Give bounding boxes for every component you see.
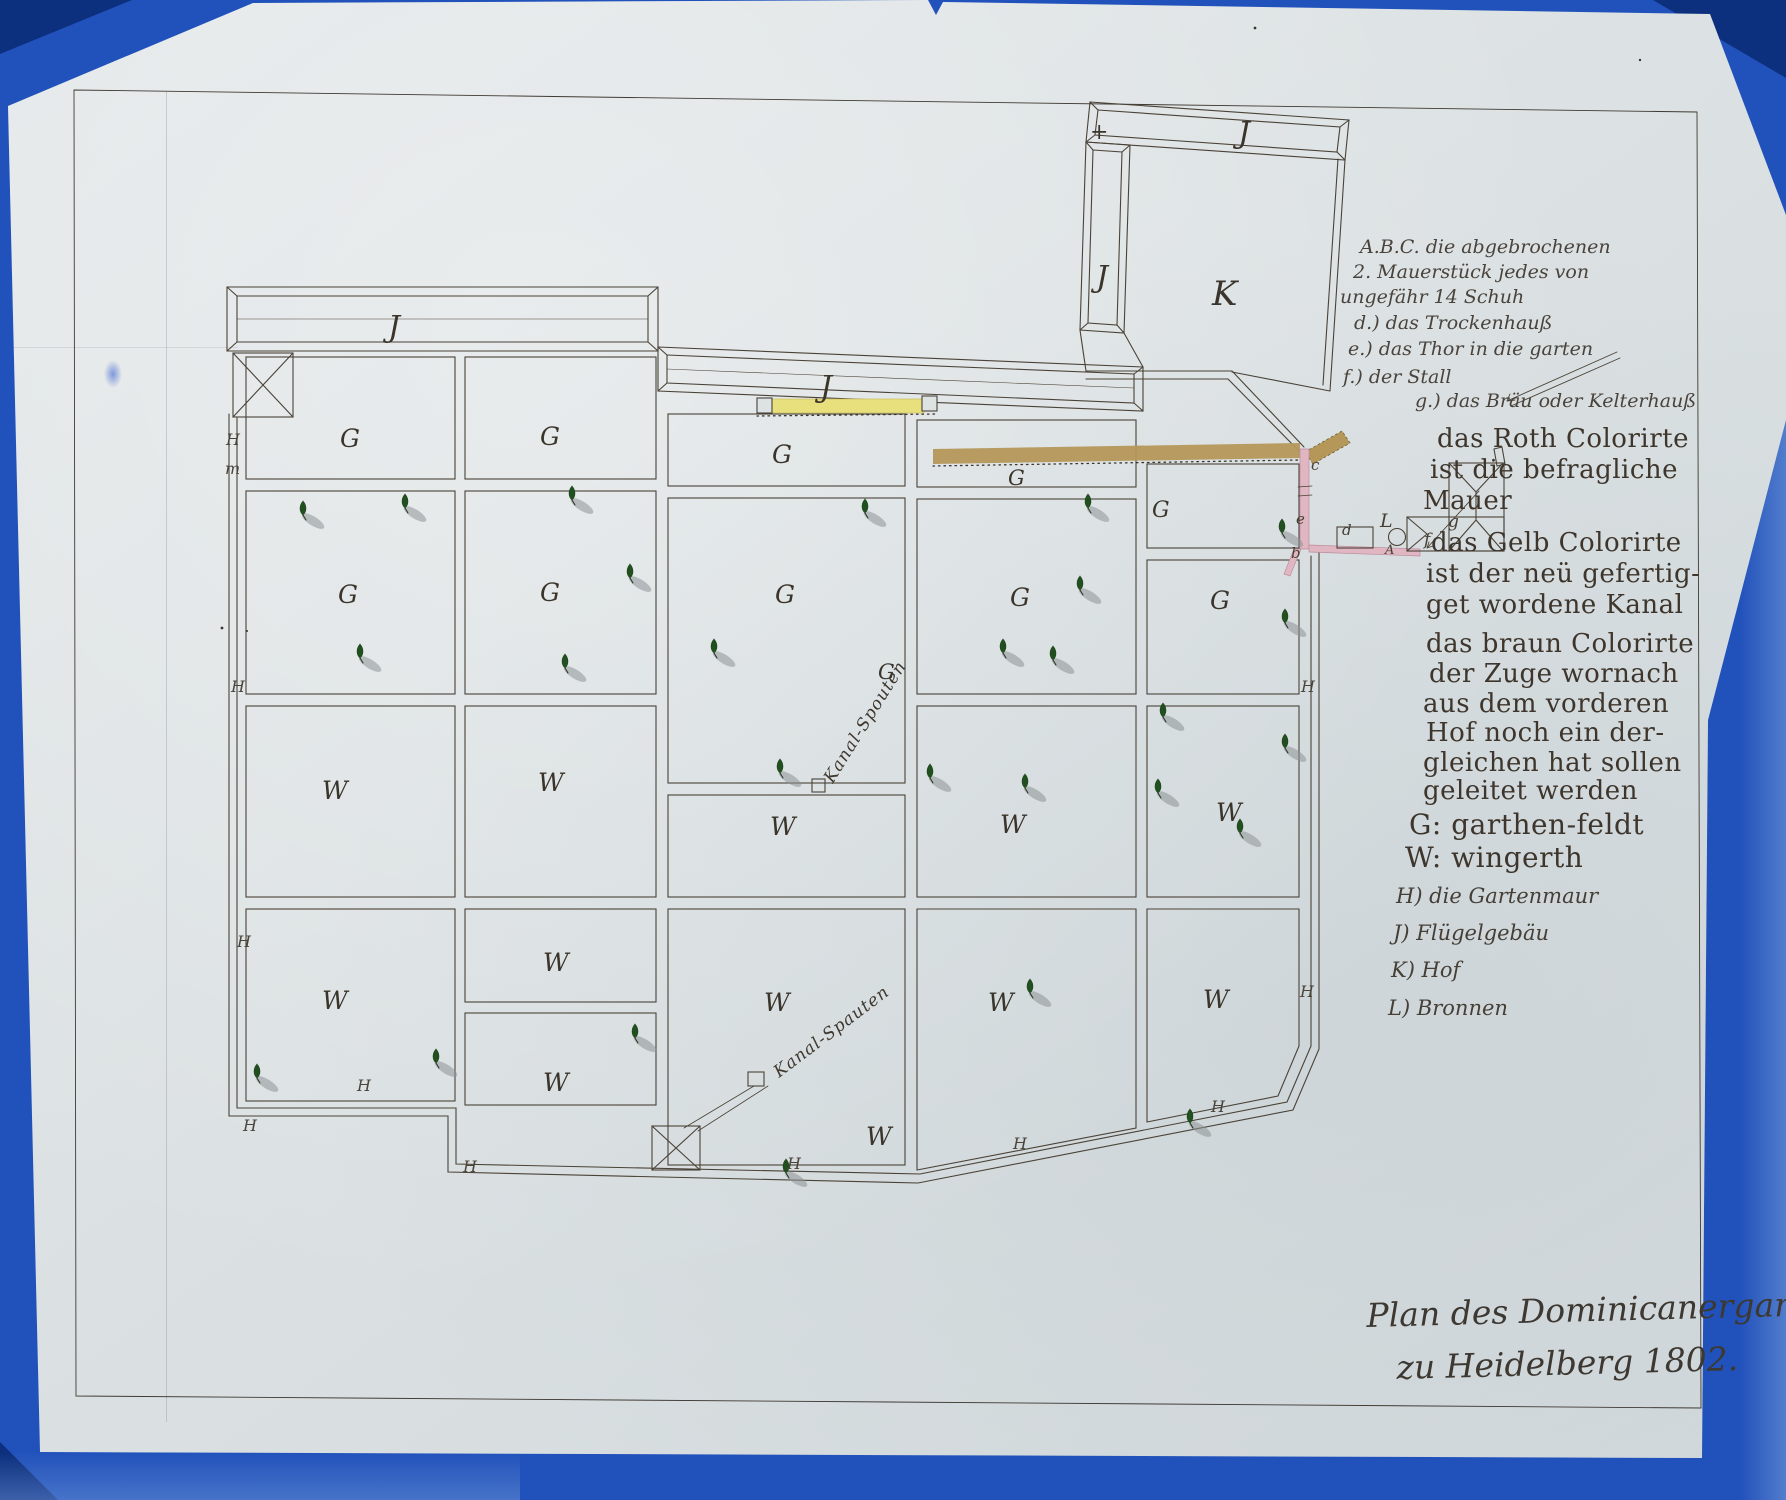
detail-label: d	[1342, 521, 1352, 539]
canal-label: Kanal-Spouten	[820, 658, 911, 787]
wall-label: H	[226, 430, 240, 449]
field-label: W	[543, 1068, 569, 1097]
detail-label: L	[1380, 510, 1393, 532]
detail-label: b	[1291, 544, 1301, 562]
field-label: G	[540, 578, 560, 607]
field-label: W	[1203, 985, 1229, 1014]
building-label: K	[1212, 274, 1237, 314]
wall-label: H	[357, 1076, 371, 1095]
field-label: W	[322, 986, 348, 1015]
field-label: G	[1010, 583, 1030, 612]
legend-note-line: 2. Mauerstück jedes von	[1353, 261, 1589, 283]
legend-note-line: f.) der Stall	[1343, 366, 1452, 388]
field-label: W	[538, 768, 564, 797]
field-label: G	[1008, 466, 1025, 490]
legend-text-line: ist der neü gefertig-	[1426, 559, 1700, 589]
field-label: G	[1210, 586, 1230, 615]
legend-text-line: geleitet werden	[1423, 776, 1638, 806]
building-label: +	[1090, 120, 1108, 145]
legend-key-line: K) Hof	[1391, 958, 1460, 982]
legend-note-line: ungefähr 14 Schuh	[1340, 286, 1524, 308]
legend-key-line: H) die Gartenmaur	[1396, 884, 1598, 908]
field-label: G	[775, 580, 795, 609]
map-title-line: zu Heidelberg 1802.	[1396, 1339, 1739, 1387]
building-label: J	[1238, 116, 1250, 151]
detail-label: f	[1424, 530, 1430, 550]
field-label: G	[772, 440, 792, 469]
legend-note-line: e.) das Thor in die garten	[1348, 338, 1593, 360]
legend-text-line: aus dem vorderen	[1423, 689, 1669, 719]
wall-label: H	[237, 932, 251, 951]
field-label: G	[540, 422, 560, 451]
building-label: J	[388, 310, 400, 345]
plan-labels-layer: GGGGGGGGGGGWWWWWWWWWWWWJJJJK+HmHHHHHHHHH…	[0, 0, 1786, 1500]
wall-label: H	[231, 677, 245, 696]
legend-text-line: das Roth Colorirte	[1437, 424, 1689, 454]
field-label: W	[988, 988, 1014, 1017]
wall-label: H	[1211, 1097, 1225, 1116]
legend-text-line: Hof noch ein der-	[1426, 718, 1665, 748]
wall-label: H	[243, 1116, 257, 1135]
field-label: G	[1152, 498, 1170, 523]
wall-label: H	[463, 1157, 477, 1176]
detail-label: A	[1385, 543, 1394, 558]
field-label: W	[866, 1122, 892, 1151]
field-label: W	[770, 812, 796, 841]
wall-label: H	[787, 1154, 801, 1173]
legend-key-line: L) Bronnen	[1388, 996, 1508, 1020]
detail-label: c	[1311, 456, 1319, 474]
wall-label: H	[1013, 1134, 1027, 1153]
legend-key-line: J) Flügelgebäu	[1393, 921, 1549, 945]
wall-label: m	[225, 459, 240, 478]
legend-text-line: get wordene Kanal	[1426, 590, 1684, 620]
field-label: W	[764, 988, 790, 1017]
legend-note-line: A.B.C. die abgebrochenen	[1360, 236, 1611, 258]
legend-text-line: ist die befragliche	[1430, 455, 1678, 485]
scanned-plan: GGGGGGGGGGGWWWWWWWWWWWWJJJJK+HmHHHHHHHHH…	[0, 0, 1786, 1500]
legend-note-line: d.) das Trockenhauß	[1354, 312, 1552, 334]
field-label: W	[322, 776, 348, 805]
legend-text-line: gleichen hat sollen	[1423, 748, 1682, 778]
legend-text-line: der Zuge wornach	[1429, 659, 1679, 689]
legend-text-line: W: wingerth	[1405, 841, 1583, 874]
legend-text-line: das Gelb Colorirte	[1431, 528, 1682, 558]
legend-note-line: g.) das Bräu oder Kelterhauß	[1415, 390, 1696, 412]
field-label: W	[1000, 810, 1026, 839]
field-label: G	[338, 580, 358, 609]
field-label: W	[1216, 798, 1242, 827]
legend-text-line: Mauer	[1423, 486, 1512, 516]
field-label: G	[340, 424, 360, 453]
building-label: J	[820, 370, 832, 405]
field-label: W	[543, 948, 569, 977]
wall-label: H	[1300, 982, 1314, 1001]
detail-label: e	[1296, 510, 1305, 528]
legend-text-line: das braun Colorirte	[1426, 629, 1694, 659]
building-label: J	[1096, 260, 1108, 295]
wall-label: H	[1301, 677, 1315, 696]
map-title-line: Plan des Dominicanergartens	[1366, 1283, 1786, 1335]
legend-text-line: G: garthen-feldt	[1409, 808, 1644, 841]
